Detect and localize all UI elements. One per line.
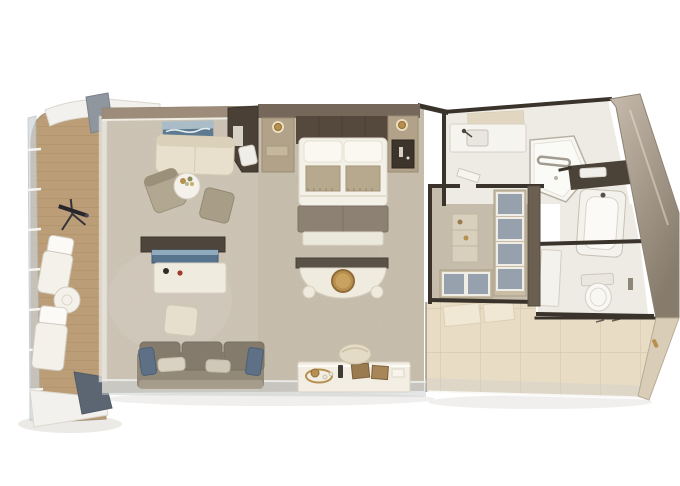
- three-seat-sofa: [137, 342, 264, 389]
- wood-box-1: [351, 363, 369, 379]
- vanity-table: [296, 258, 388, 298]
- toilet-paper-holder: [628, 278, 633, 290]
- desk-item-dark: [163, 268, 169, 274]
- shelf-item-1: [458, 220, 463, 225]
- reading-lamp-right: [399, 122, 406, 129]
- nightstand-left: [262, 118, 294, 172]
- balcony-window-wall: [99, 116, 107, 382]
- bar-console: [298, 362, 410, 392]
- door-mat-2: [483, 301, 515, 322]
- cream-pillow-2: [206, 359, 231, 372]
- minibar-bottle: [399, 147, 403, 157]
- tv-media-desk: [141, 237, 226, 293]
- napkin-stack: [392, 369, 404, 377]
- footstool: [164, 304, 199, 336]
- flower-side-table: [174, 173, 200, 199]
- flower-4: [190, 182, 194, 186]
- wall-band-closet: [528, 186, 540, 306]
- round-stool: [339, 344, 371, 364]
- open-shelf: [452, 214, 478, 262]
- king-bed: [298, 138, 388, 245]
- teacup-1: [323, 375, 327, 379]
- vanity-back-console: [296, 258, 388, 268]
- bed-base: [303, 232, 383, 245]
- wc-door: [539, 250, 562, 307]
- vanity-stool-left: [303, 286, 315, 298]
- teacup-2: [329, 372, 333, 376]
- bed-pillow-left: [304, 141, 342, 162]
- shelf-item-2: [464, 236, 469, 241]
- sink: [467, 130, 488, 146]
- wood-box-2: [372, 365, 389, 379]
- cream-pillow-1: [158, 357, 186, 372]
- tv-screen-sky: [152, 250, 218, 255]
- teapot: [311, 369, 319, 377]
- flower-2: [188, 177, 193, 182]
- bed-pillow-right: [344, 141, 382, 162]
- desk-chair: [238, 145, 258, 167]
- luggage-bench-tops: [443, 273, 489, 295]
- door-mat-1: [443, 303, 481, 327]
- minibar-glass: [407, 157, 410, 160]
- desk-item-red: [177, 270, 182, 275]
- gold-mirror-inner: [336, 274, 351, 289]
- media-desk-top: [154, 263, 226, 293]
- shower-drain: [554, 176, 558, 180]
- reading-lamp-left: [275, 124, 282, 131]
- bathtub: [576, 189, 626, 258]
- flower-1: [180, 178, 186, 184]
- blue-pillow-left: [138, 347, 157, 376]
- blue-pillow-right: [245, 347, 264, 376]
- floorplan-render: [0, 0, 680, 486]
- towel-shelf: [580, 167, 606, 177]
- bottle: [338, 365, 343, 378]
- nightstand-right: [388, 116, 418, 172]
- nightstand-drawer: [266, 146, 288, 156]
- sofa-front-edge: [139, 380, 263, 389]
- flower-3: [185, 182, 189, 186]
- vanity-stool-right: [371, 286, 383, 298]
- floorplan-canvas: [0, 0, 680, 486]
